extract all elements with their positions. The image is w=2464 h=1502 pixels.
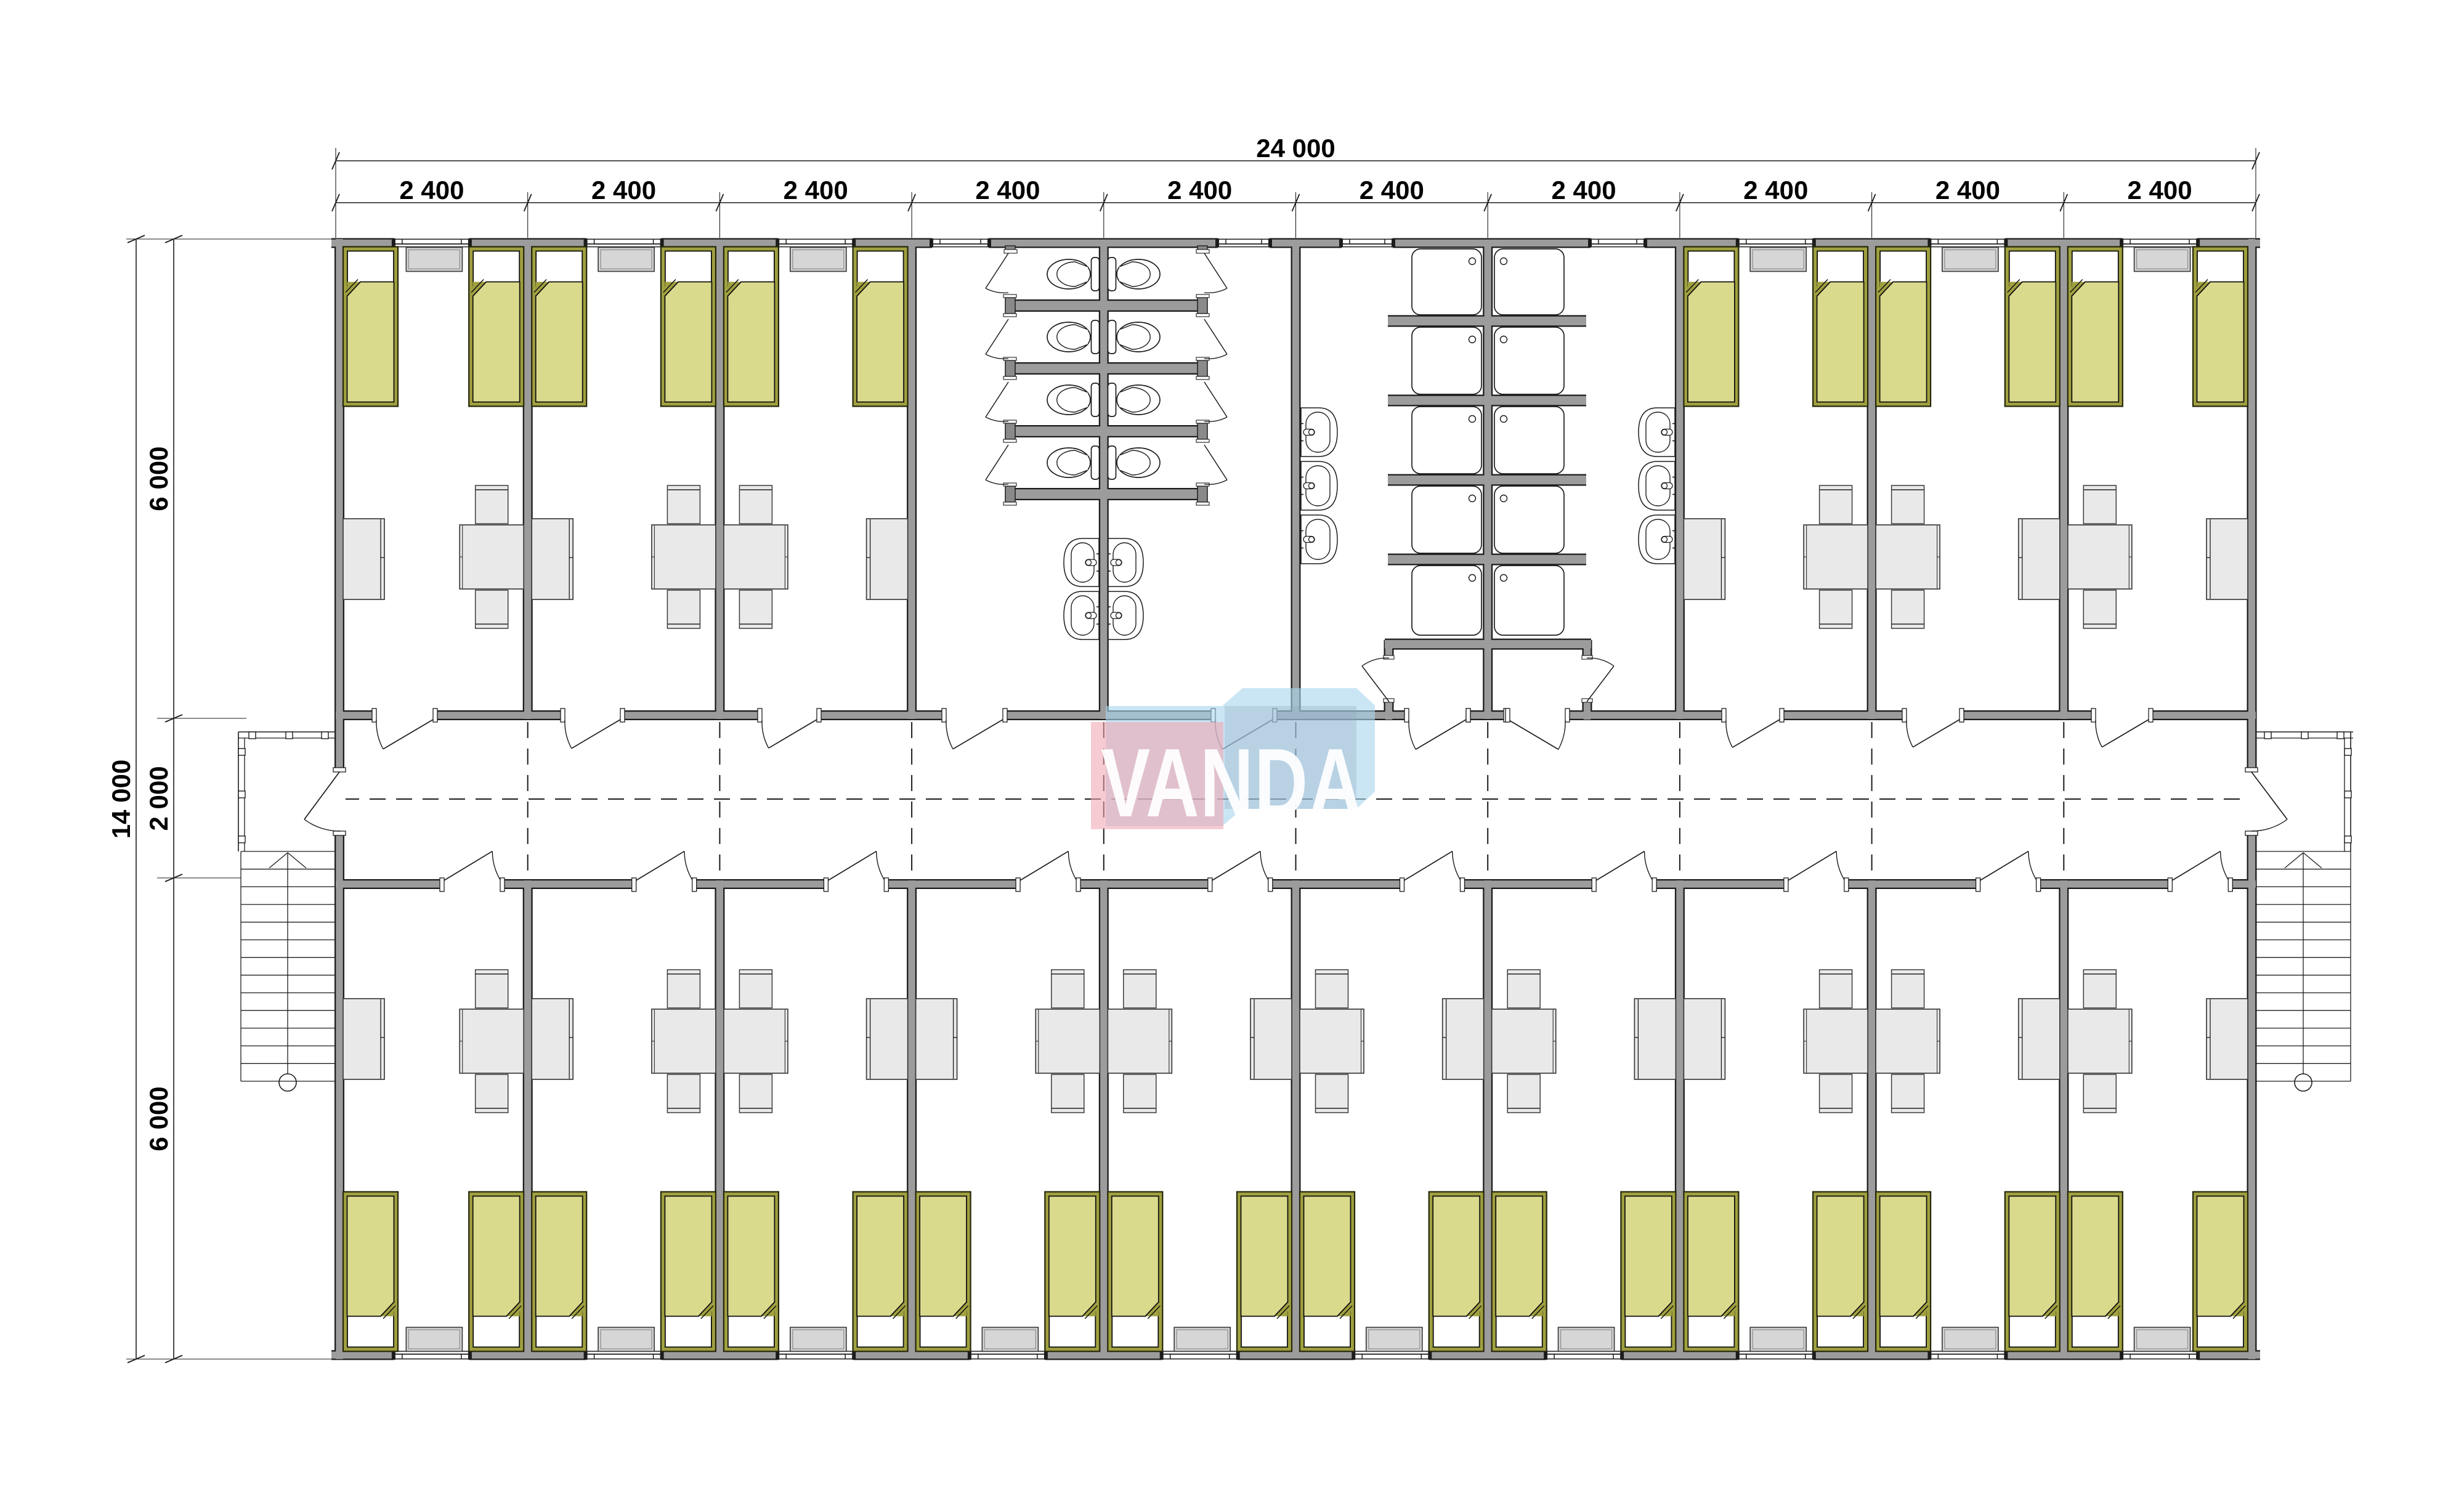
svg-text:2 400: 2 400 bbox=[399, 176, 464, 205]
svg-text:VANDA: VANDA bbox=[1101, 728, 1363, 837]
svg-text:14 000: 14 000 bbox=[107, 760, 136, 838]
svg-text:2 400: 2 400 bbox=[784, 176, 848, 205]
svg-text:2 400: 2 400 bbox=[1743, 176, 1808, 205]
svg-text:6 000: 6 000 bbox=[144, 1086, 173, 1151]
svg-text:2 400: 2 400 bbox=[591, 176, 656, 205]
svg-text:2 400: 2 400 bbox=[2128, 176, 2192, 205]
svg-text:2 400: 2 400 bbox=[1552, 176, 1616, 205]
svg-text:2 400: 2 400 bbox=[975, 176, 1040, 205]
svg-text:24 000: 24 000 bbox=[1256, 134, 1335, 163]
svg-text:2 400: 2 400 bbox=[1167, 176, 1232, 205]
svg-text:2 400: 2 400 bbox=[1935, 176, 2000, 205]
svg-text:2 400: 2 400 bbox=[1360, 176, 1424, 205]
svg-text:6 000: 6 000 bbox=[144, 446, 173, 511]
svg-text:2 000: 2 000 bbox=[144, 766, 173, 830]
